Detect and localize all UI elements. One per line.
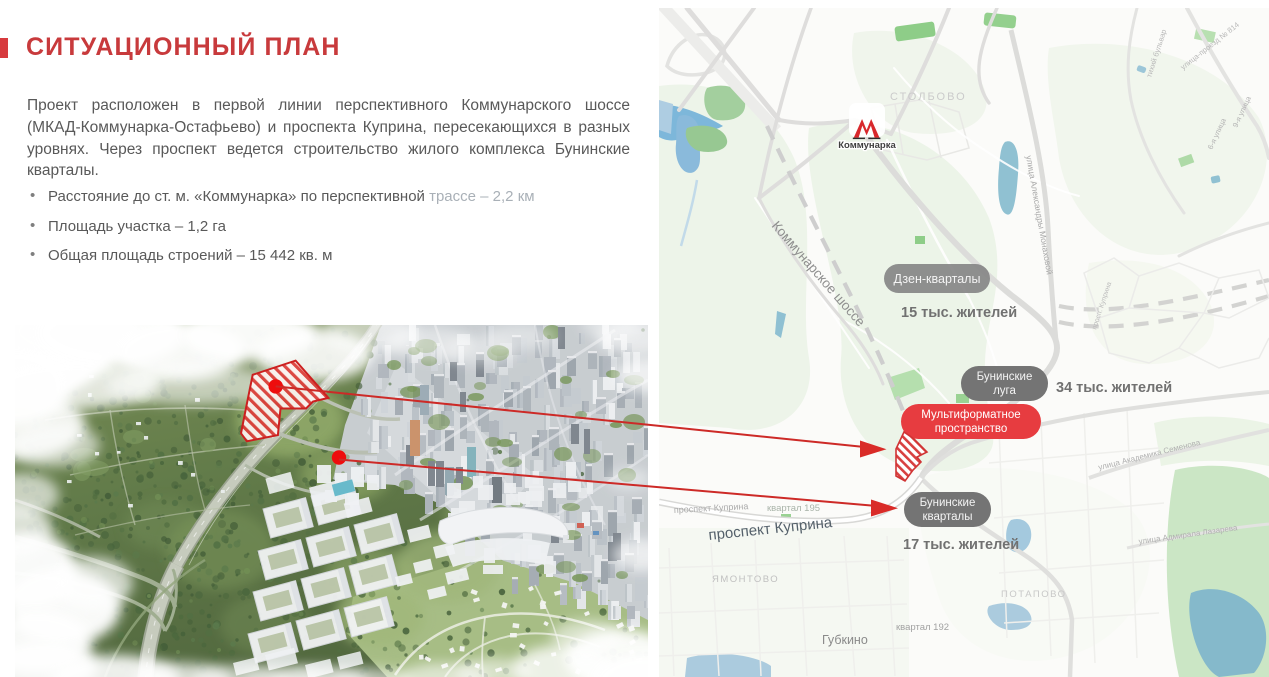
- svg-text:34 тыс. жителей: 34 тыс. жителей: [1056, 380, 1172, 396]
- svg-text:пространство: пространство: [935, 423, 1008, 435]
- svg-text:квартал 195: квартал 195: [767, 503, 820, 514]
- svg-text:квартал 192: квартал 192: [896, 622, 949, 633]
- svg-text:Бунинские: Бунинские: [977, 371, 1033, 383]
- svg-text:Бунинские: Бунинские: [920, 497, 976, 509]
- svg-text:луга: луга: [993, 385, 1016, 397]
- svg-text:кварталы: кварталы: [922, 511, 972, 523]
- svg-text:ПОТАПОВО: ПОТАПОВО: [1001, 589, 1067, 600]
- svg-text:Коммунарка: Коммунарка: [838, 140, 896, 151]
- svg-text:15 тыс. жителей: 15 тыс. жителей: [901, 305, 1017, 321]
- svg-text:Губкино: Губкино: [822, 633, 868, 647]
- svg-text:ЯМОНТОВО: ЯМОНТОВО: [712, 574, 779, 585]
- svg-text:Дзен-кварталы: Дзен-кварталы: [894, 272, 981, 286]
- svg-text:СТОЛБОВО: СТОЛБОВО: [890, 91, 967, 103]
- svg-text:17 тыс. жителей: 17 тыс. жителей: [903, 537, 1019, 553]
- svg-text:Мультиформатное: Мультиформатное: [921, 409, 1020, 421]
